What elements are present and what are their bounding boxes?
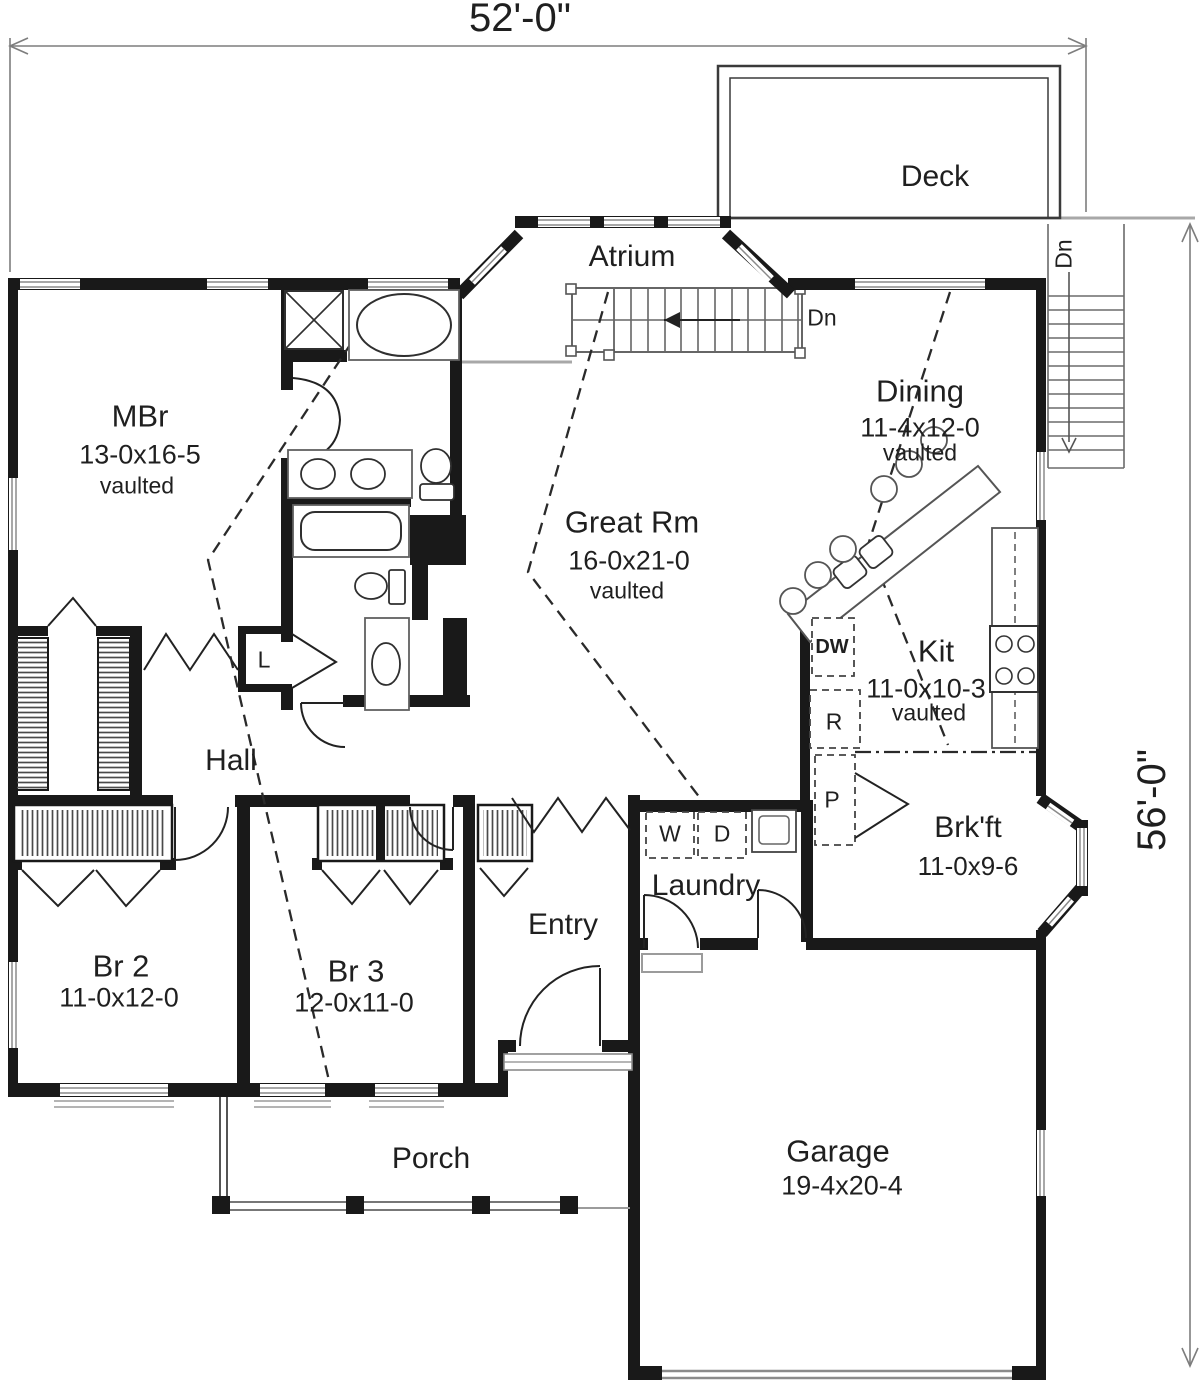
room-label-laundry: Laundry (652, 871, 760, 901)
deck-outline (718, 66, 1060, 218)
room-dims-mbr: 13-0x16-5 (79, 442, 201, 469)
garage-door (662, 1371, 1012, 1378)
floor-plan-page: 52'-0" 56'-0" Deck Atrium MBr 13-0x16-5 … (0, 0, 1200, 1383)
room-label-kit: Kit (918, 636, 954, 667)
room-note-kit: vaulted (892, 702, 966, 725)
label-pantry: P (824, 789, 839, 812)
room-dims-dining: 11-4x12-0 (860, 415, 980, 442)
porch-post (472, 1196, 490, 1214)
room-label-atrium: Atrium (589, 242, 676, 272)
dimension-width-label: 52'-0" (469, 0, 571, 38)
room-dims-br3: 12-0x11-0 (294, 990, 414, 1017)
room-dims-garage: 19-4x20-4 (781, 1173, 903, 1200)
room-label-entry: Entry (528, 910, 598, 940)
label-dishwasher: DW (815, 637, 848, 657)
room-label-br3: Br 3 (328, 956, 385, 987)
room-note-mbr: vaulted (100, 475, 174, 498)
room-label-mbr: MBr (112, 401, 169, 432)
label-washer: W (659, 823, 681, 846)
dining-chair (871, 476, 897, 502)
bar-stool (780, 588, 806, 614)
label-refrigerator: R (826, 711, 843, 734)
room-label-dining: Dining (876, 376, 964, 407)
room-dims-br2: 11-0x12-0 (59, 985, 179, 1012)
room-label-great-rm: Great Rm (565, 507, 699, 538)
floor-plan-drawing (0, 0, 1200, 1383)
room-note-great-rm: vaulted (590, 580, 664, 603)
room-dims-great-rm: 16-0x21-0 (568, 548, 690, 575)
label-stairs-down-interior: Dn (807, 307, 836, 330)
toilet-hall (355, 573, 387, 599)
porch-post (560, 1196, 578, 1214)
toilet-master (421, 449, 451, 483)
room-label-deck: Deck (901, 162, 969, 192)
room-label-hall: Hall (205, 746, 257, 776)
label-stairs-down-deck: Dn (1053, 239, 1076, 268)
hall-bathtub (301, 512, 401, 550)
porch-post (212, 1196, 230, 1214)
room-dims-kit: 11-0x10-3 (866, 676, 986, 703)
label-linen: L (258, 649, 271, 672)
garage-step (642, 954, 702, 972)
room-note-dining: vaulted (883, 442, 957, 465)
master-bathtub (357, 294, 451, 356)
room-label-porch: Porch (392, 1144, 470, 1174)
label-dryer: D (714, 823, 731, 846)
room-label-garage: Garage (786, 1136, 889, 1167)
room-label-br2: Br 2 (93, 951, 150, 982)
bar-stool (830, 536, 856, 562)
porch-post (346, 1196, 364, 1214)
room-label-brkft: Brk'ft (934, 813, 1001, 843)
interior-stairs (460, 284, 805, 362)
room-dims-brkft: 11-0x9-6 (918, 853, 1019, 879)
dimension-height-label: 56'-0" (1132, 749, 1172, 851)
bar-stool (805, 562, 831, 588)
